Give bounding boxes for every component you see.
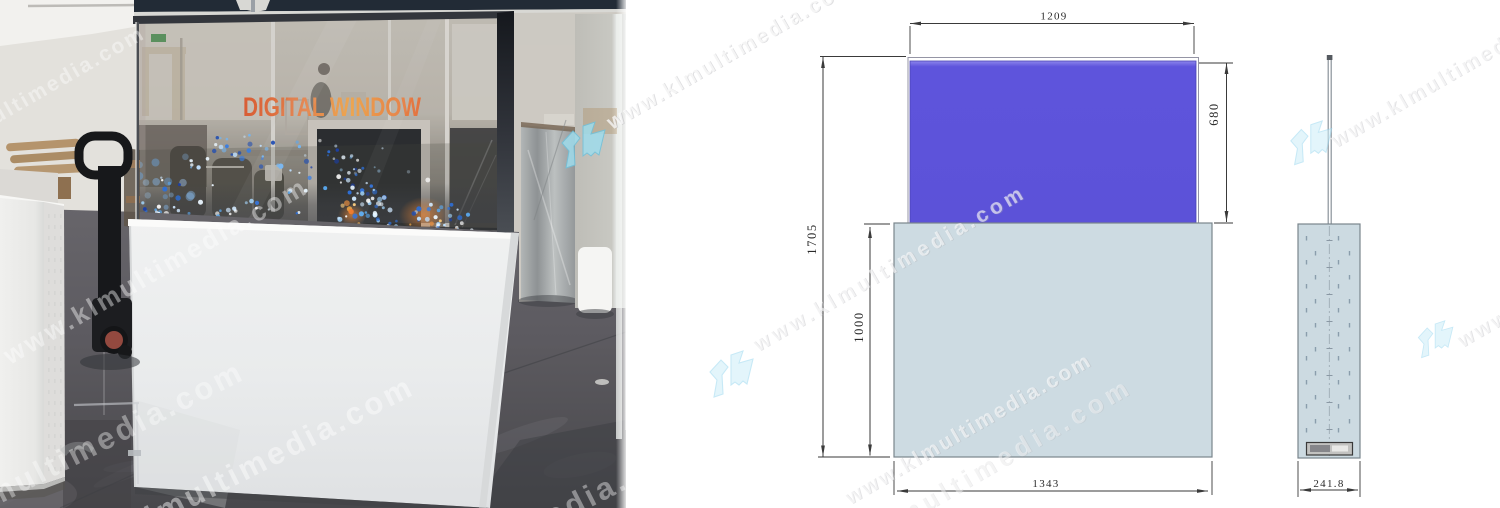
svg-text:1343: 1343: [1032, 478, 1059, 490]
svg-text:241.8: 241.8: [1313, 478, 1344, 490]
svg-text:1209: 1209: [1040, 11, 1067, 23]
svg-text:1705: 1705: [805, 223, 819, 254]
svg-text:680: 680: [1207, 102, 1221, 126]
svg-text:1000: 1000: [852, 311, 866, 342]
